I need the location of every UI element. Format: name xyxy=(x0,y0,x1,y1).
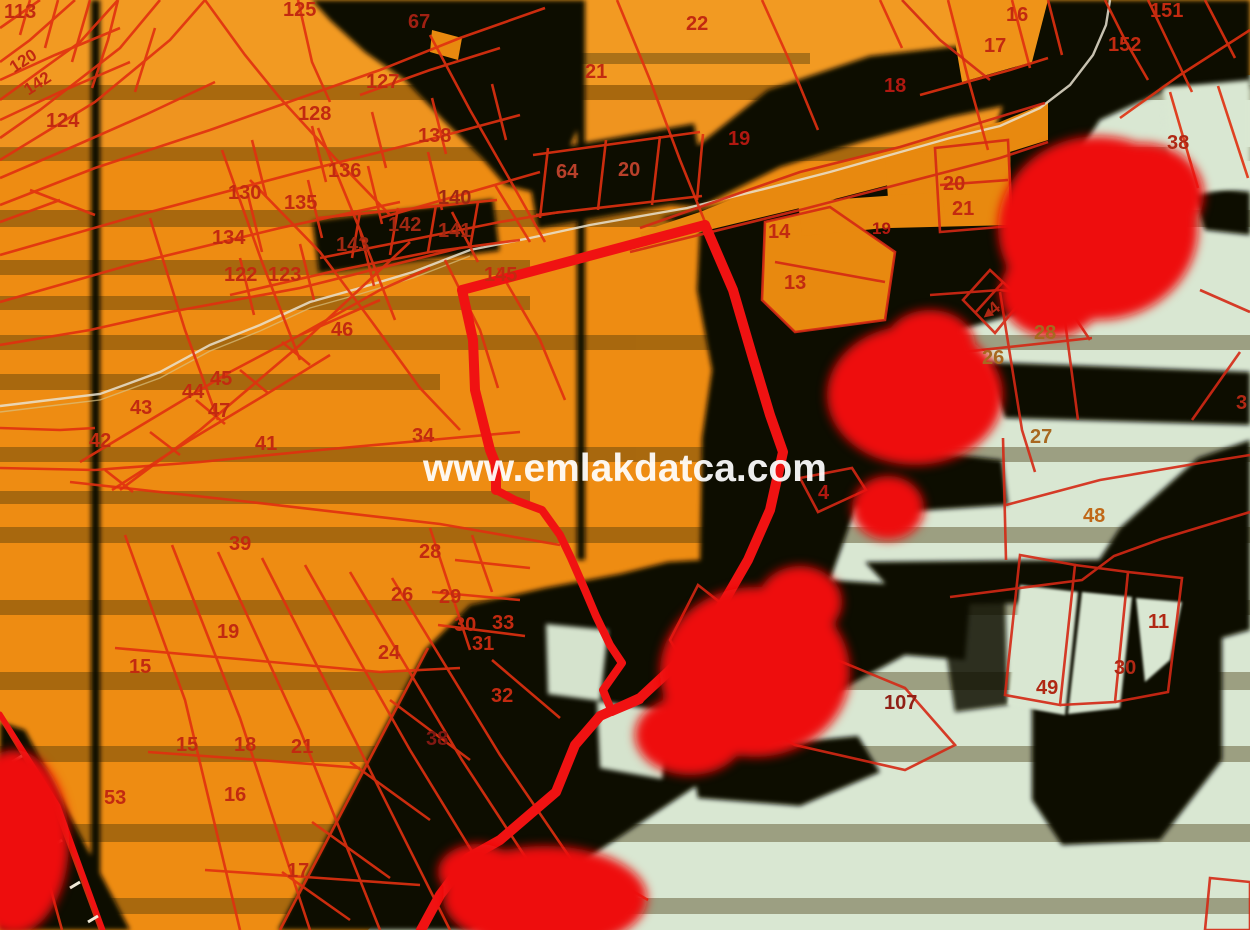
svg-text:26: 26 xyxy=(391,584,413,606)
svg-text:19: 19 xyxy=(217,621,239,643)
svg-text:152: 152 xyxy=(1108,34,1141,56)
svg-text:31: 31 xyxy=(472,633,494,655)
svg-text:44: 44 xyxy=(182,381,205,403)
svg-text:11: 11 xyxy=(1148,611,1169,633)
svg-text:14: 14 xyxy=(768,221,791,243)
svg-text:18: 18 xyxy=(234,734,256,756)
svg-text:43: 43 xyxy=(130,397,152,419)
svg-text:64: 64 xyxy=(556,161,579,183)
svg-text:16: 16 xyxy=(1006,4,1028,26)
svg-text:22: 22 xyxy=(686,13,708,35)
svg-text:19: 19 xyxy=(872,219,891,238)
svg-text:www.emlakdatca.com: www.emlakdatca.com xyxy=(422,447,827,490)
svg-text:136: 136 xyxy=(328,160,361,182)
svg-text:15: 15 xyxy=(129,656,151,678)
svg-text:142: 142 xyxy=(388,214,421,236)
svg-text:16: 16 xyxy=(224,784,246,806)
svg-text:47: 47 xyxy=(208,400,230,422)
svg-text:130: 130 xyxy=(228,182,261,204)
svg-text:39: 39 xyxy=(229,533,251,555)
svg-text:38: 38 xyxy=(426,728,448,750)
svg-text:17: 17 xyxy=(984,35,1006,57)
svg-text:46: 46 xyxy=(331,319,353,341)
svg-text:20: 20 xyxy=(618,159,640,181)
svg-text:26: 26 xyxy=(982,347,1004,369)
svg-text:21: 21 xyxy=(291,736,313,758)
svg-text:30: 30 xyxy=(1114,657,1136,679)
svg-text:33: 33 xyxy=(492,612,514,634)
svg-text:48: 48 xyxy=(1083,505,1105,527)
svg-text:28: 28 xyxy=(419,541,441,563)
svg-text:45: 45 xyxy=(210,368,232,390)
svg-text:127: 127 xyxy=(366,71,399,93)
svg-text:38: 38 xyxy=(1167,132,1189,154)
svg-text:41: 41 xyxy=(255,433,277,455)
svg-text:145: 145 xyxy=(484,264,517,286)
svg-text:27: 27 xyxy=(1030,426,1052,448)
svg-text:141: 141 xyxy=(438,220,471,242)
svg-text:3: 3 xyxy=(1236,392,1247,414)
svg-text:19: 19 xyxy=(728,128,750,150)
svg-text:49: 49 xyxy=(1036,677,1058,699)
svg-text:151: 151 xyxy=(1150,0,1183,22)
svg-text:134: 134 xyxy=(212,227,246,249)
svg-text:15: 15 xyxy=(176,734,198,756)
svg-text:17: 17 xyxy=(287,860,309,882)
svg-text:24: 24 xyxy=(378,642,401,664)
svg-text:18: 18 xyxy=(884,75,906,97)
svg-text:125: 125 xyxy=(283,0,316,21)
svg-text:53: 53 xyxy=(104,787,126,809)
svg-text:21: 21 xyxy=(952,198,974,220)
svg-text:20: 20 xyxy=(943,173,965,195)
svg-text:107: 107 xyxy=(884,692,917,714)
svg-text:21: 21 xyxy=(585,61,607,83)
svg-text:67: 67 xyxy=(408,11,430,33)
svg-text:13: 13 xyxy=(784,272,806,294)
svg-text:138: 138 xyxy=(418,125,451,147)
svg-text:32: 32 xyxy=(491,685,513,707)
svg-text:34: 34 xyxy=(412,425,435,447)
svg-text:29: 29 xyxy=(439,586,461,608)
svg-text:143: 143 xyxy=(336,234,369,256)
svg-text:28: 28 xyxy=(1034,322,1056,344)
svg-text:42: 42 xyxy=(89,430,111,452)
svg-text:135: 135 xyxy=(284,192,317,214)
svg-text:113: 113 xyxy=(4,1,36,23)
svg-text:140: 140 xyxy=(438,187,471,209)
svg-text:124: 124 xyxy=(46,110,80,132)
svg-text:123: 123 xyxy=(268,264,301,286)
svg-text:122: 122 xyxy=(224,264,257,286)
svg-text:128: 128 xyxy=(298,103,331,125)
